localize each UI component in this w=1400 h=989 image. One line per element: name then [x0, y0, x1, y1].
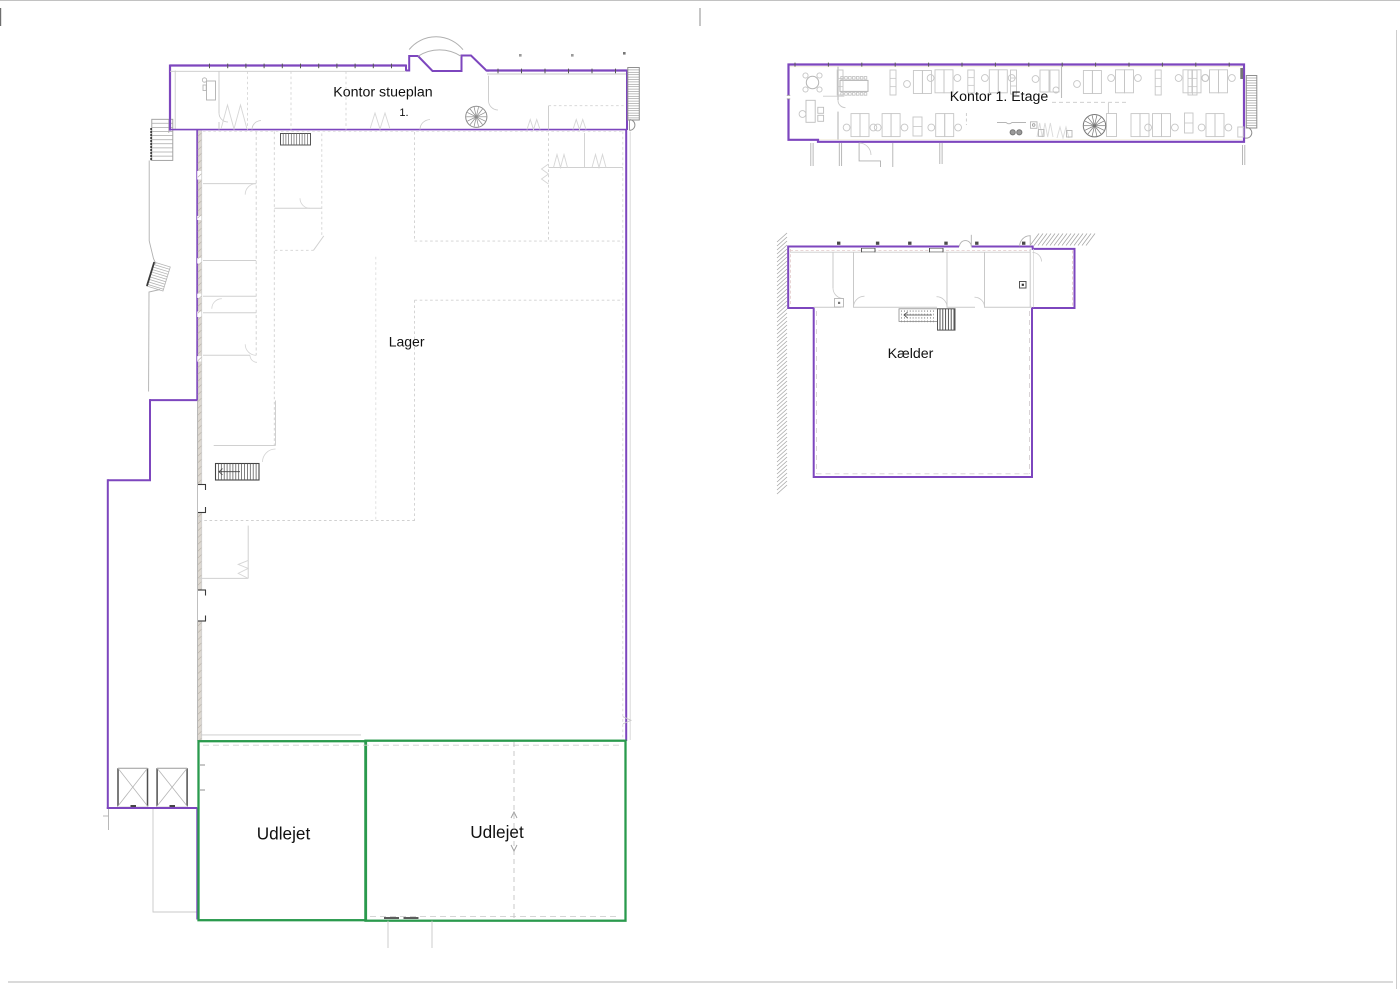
svg-text:Kontor 1. Etage: Kontor 1. Etage — [950, 89, 1049, 105]
svg-text:Udlejet: Udlejet — [470, 822, 524, 842]
svg-text:Kontor stueplan: Kontor stueplan — [333, 85, 432, 101]
svg-text:1.: 1. — [399, 107, 408, 119]
svg-text:Kælder: Kælder — [888, 346, 934, 362]
svg-text:Lager: Lager — [389, 333, 425, 349]
svg-text:Udlejet: Udlejet — [257, 824, 311, 844]
